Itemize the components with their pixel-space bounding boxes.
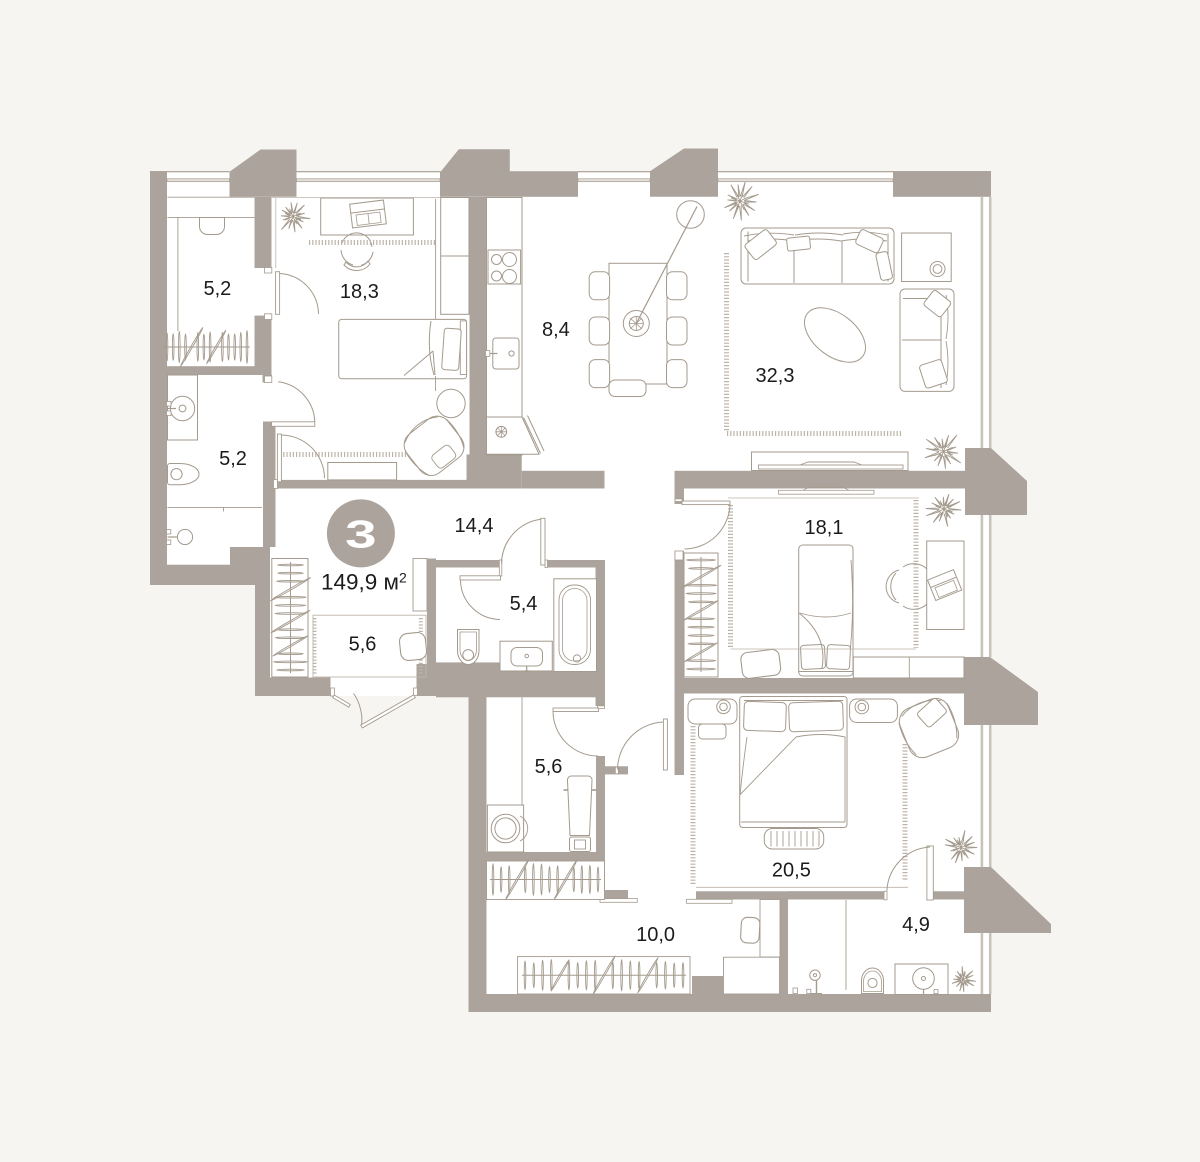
svg-text:4,9: 4,9 [902,914,930,936]
svg-text:8,4: 8,4 [542,319,570,341]
svg-text:5,6: 5,6 [535,756,563,778]
svg-text:3: 3 [345,513,376,556]
svg-text:5,4: 5,4 [510,593,538,615]
svg-text:5,2: 5,2 [219,448,247,470]
svg-text:32,3: 32,3 [756,365,795,387]
svg-text:5,2: 5,2 [203,278,231,300]
svg-text:18,1: 18,1 [805,517,844,539]
svg-text:14,4: 14,4 [455,515,494,537]
svg-text:5,6: 5,6 [349,634,377,656]
svg-text:18,3: 18,3 [340,281,379,303]
svg-text:20,5: 20,5 [772,860,811,882]
svg-text:149,9 м2: 149,9 м2 [321,570,407,595]
svg-text:10,0: 10,0 [636,924,675,946]
